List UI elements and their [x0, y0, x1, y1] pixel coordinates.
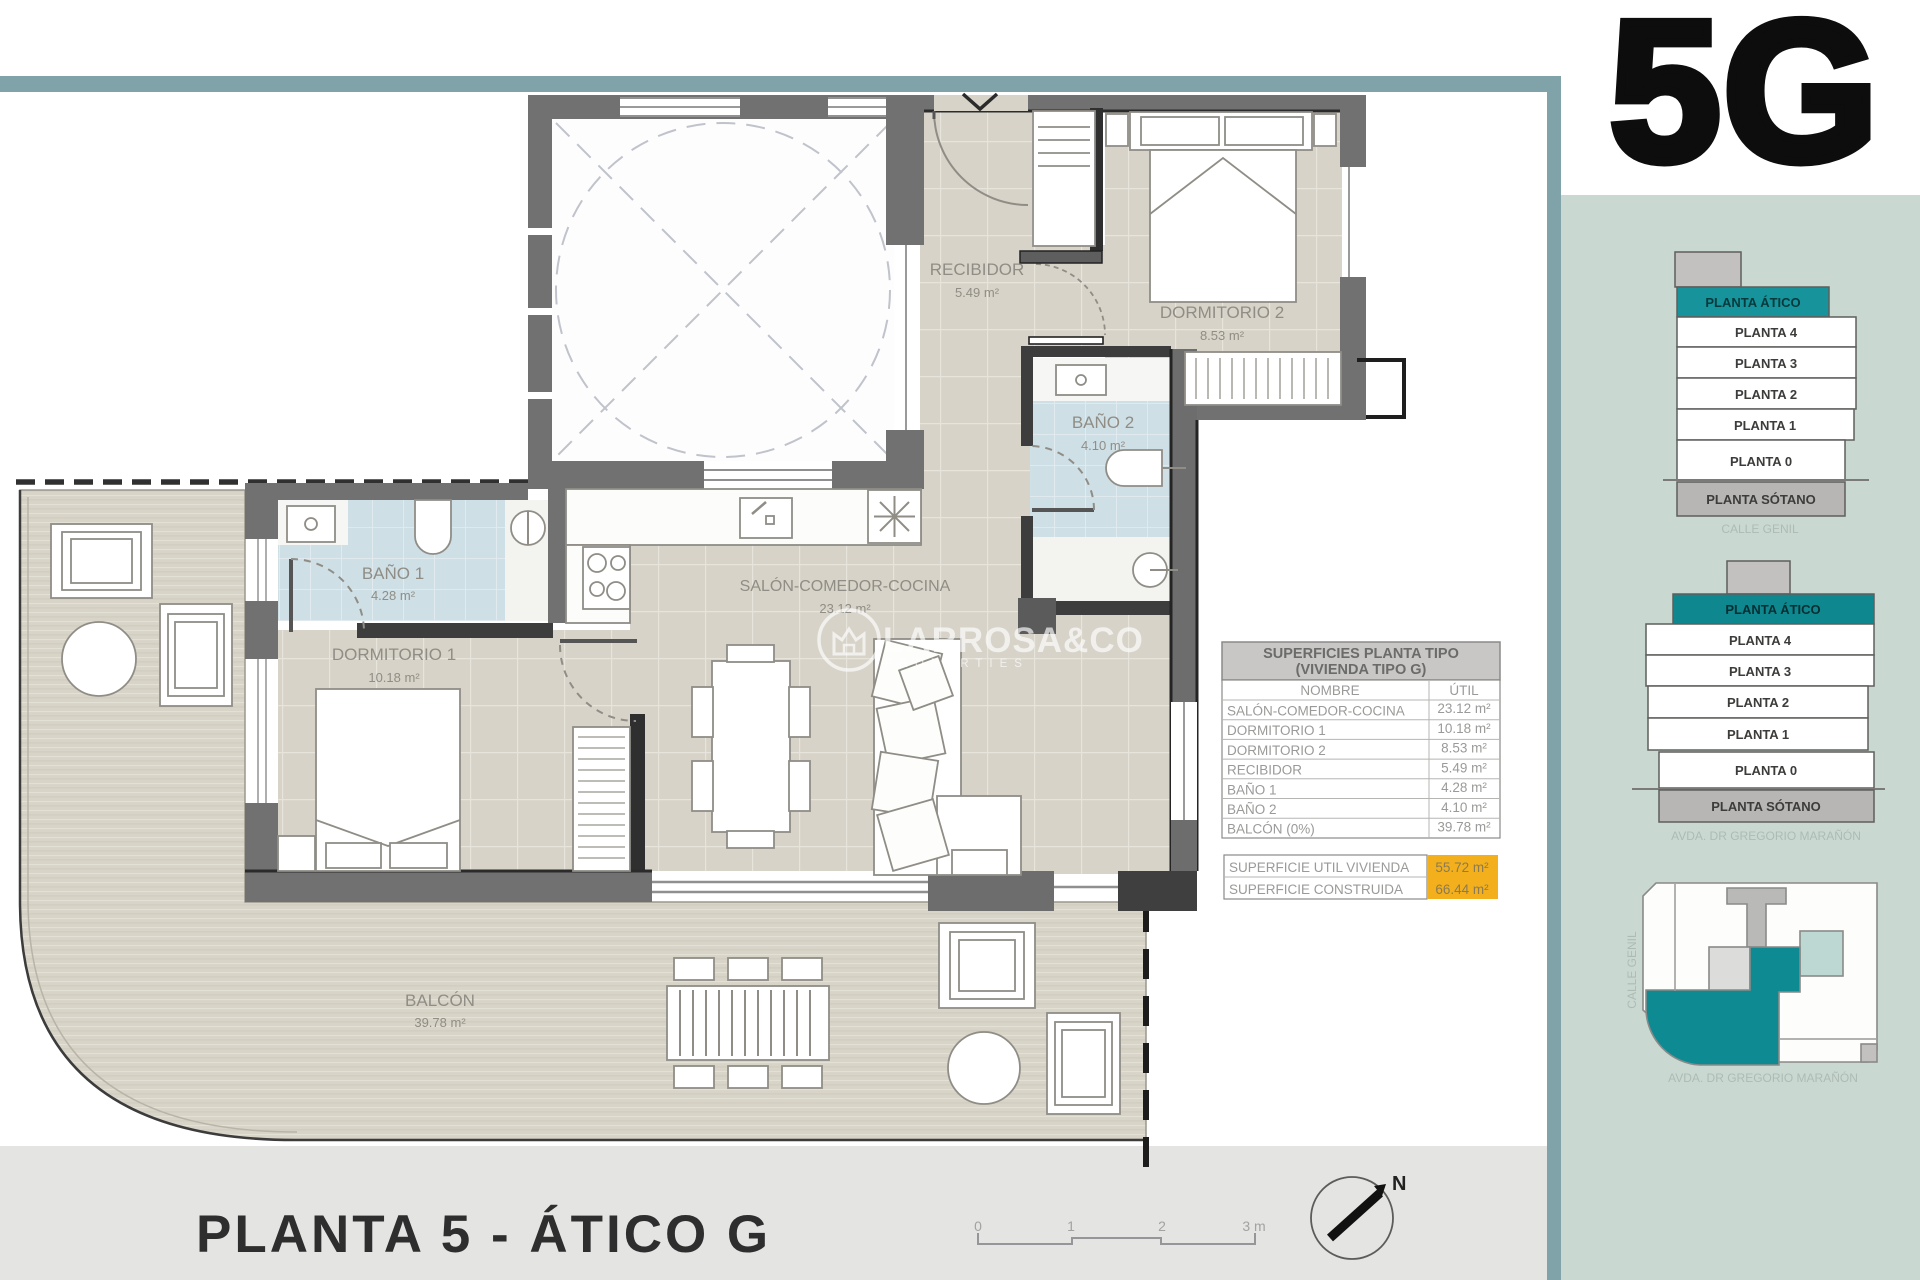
svg-text:4.28 m²: 4.28 m² [1441, 780, 1487, 795]
svg-text:CALLE GENIL: CALLE GENIL [1721, 522, 1799, 536]
svg-text:PLANTA SÓTANO: PLANTA SÓTANO [1706, 492, 1816, 507]
svg-text:55.72 m²: 55.72 m² [1435, 860, 1489, 875]
svg-text:SUPERFICIE UTIL VIVIENDA: SUPERFICIE UTIL VIVIENDA [1229, 860, 1409, 875]
svg-text:PLANTA ÁTICO: PLANTA ÁTICO [1705, 295, 1800, 310]
svg-text:(VIVIENDA TIPO G): (VIVIENDA TIPO G) [1296, 662, 1427, 678]
svg-text:SUPERFICIES PLANTA TIPO: SUPERFICIES PLANTA TIPO [1263, 646, 1459, 662]
svg-text:5.49 m²: 5.49 m² [1441, 760, 1487, 775]
svg-text:1: 1 [1067, 1218, 1075, 1234]
svg-text:NOMBRE: NOMBRE [1300, 683, 1359, 698]
svg-text:PLANTA SÓTANO: PLANTA SÓTANO [1711, 799, 1821, 814]
svg-text:DORMITORIO 2: DORMITORIO 2 [1160, 303, 1284, 322]
svg-text:ÚTIL: ÚTIL [1449, 683, 1479, 698]
svg-text:39.78 m²: 39.78 m² [1437, 820, 1491, 835]
svg-text:23.12 m²: 23.12 m² [1437, 701, 1491, 716]
svg-text:SUPERFICIE CONSTRUIDA: SUPERFICIE CONSTRUIDA [1229, 882, 1403, 897]
svg-text:66.44 m²: 66.44 m² [1435, 882, 1489, 897]
svg-text:BAÑO 1: BAÑO 1 [1227, 782, 1277, 797]
svg-text:PLANTA 3: PLANTA 3 [1729, 664, 1791, 679]
svg-text:8.53 m²: 8.53 m² [1441, 741, 1487, 756]
svg-text:RECIBIDOR: RECIBIDOR [930, 260, 1024, 279]
svg-text:AVDA. DR GREGORIO MARAÑÓN: AVDA. DR GREGORIO MARAÑÓN [1668, 1070, 1858, 1085]
svg-text:BAÑO 1: BAÑO 1 [362, 564, 424, 583]
svg-text:RECIBIDOR: RECIBIDOR [1227, 763, 1302, 778]
svg-text:BAÑO 2: BAÑO 2 [1227, 802, 1277, 817]
svg-text:PLANTA 1: PLANTA 1 [1727, 727, 1789, 742]
svg-text:N: N [1392, 1173, 1406, 1195]
svg-text:PLANTA 2: PLANTA 2 [1727, 695, 1789, 710]
svg-text:BALCÓN: BALCÓN [405, 991, 475, 1010]
svg-text:2: 2 [1158, 1218, 1166, 1234]
svg-text:BALCÓN (0%): BALCÓN (0%) [1227, 822, 1315, 837]
svg-text:10.18 m²: 10.18 m² [368, 670, 420, 685]
svg-text:PLANTA 2: PLANTA 2 [1735, 387, 1797, 402]
svg-text:DORMITORIO 1: DORMITORIO 1 [332, 645, 456, 664]
svg-text:4.10 m²: 4.10 m² [1441, 800, 1487, 815]
svg-text:4.28 m²: 4.28 m² [371, 588, 416, 603]
svg-text:0: 0 [974, 1218, 982, 1234]
svg-text:PLANTA 4: PLANTA 4 [1729, 633, 1792, 648]
svg-text:5G: 5G [1610, 0, 1881, 203]
svg-text:4.10 m²: 4.10 m² [1081, 438, 1126, 453]
svg-text:PROPERTIES: PROPERTIES [885, 658, 1029, 670]
svg-text:5.49 m²: 5.49 m² [955, 285, 1000, 300]
svg-text:CALLE GENIL: CALLE GENIL [1625, 931, 1639, 1009]
svg-text:39.78 m²: 39.78 m² [414, 1015, 466, 1030]
svg-text:DORMITORIO 2: DORMITORIO 2 [1227, 743, 1326, 758]
svg-text:PLANTA 0: PLANTA 0 [1735, 763, 1797, 778]
svg-text:PLANTA ÁTICO: PLANTA ÁTICO [1725, 602, 1820, 617]
svg-text:PLANTA 5 - ÁTICO G: PLANTA 5 - ÁTICO G [196, 1204, 771, 1264]
svg-text:8.53 m²: 8.53 m² [1200, 328, 1245, 343]
svg-text:PLANTA 3: PLANTA 3 [1735, 356, 1797, 371]
svg-text:AVDA. DR GREGORIO MARAÑÓN: AVDA. DR GREGORIO MARAÑÓN [1671, 828, 1861, 843]
svg-text:PLANTA 0: PLANTA 0 [1730, 454, 1792, 469]
svg-text:SALÓN-COMEDOR-COCINA: SALÓN-COMEDOR-COCINA [1227, 704, 1405, 719]
svg-text:LARROSA&CO: LARROSA&CO [883, 621, 1144, 660]
svg-text:3 m: 3 m [1242, 1218, 1265, 1234]
svg-text:PLANTA 4: PLANTA 4 [1735, 325, 1798, 340]
svg-text:DORMITORIO 1: DORMITORIO 1 [1227, 723, 1326, 738]
svg-text:PLANTA 1: PLANTA 1 [1734, 418, 1796, 433]
svg-text:BAÑO 2: BAÑO 2 [1072, 413, 1134, 432]
svg-text:SALÓN-COMEDOR-COCINA: SALÓN-COMEDOR-COCINA [740, 576, 951, 595]
svg-text:10.18 m²: 10.18 m² [1437, 721, 1491, 736]
